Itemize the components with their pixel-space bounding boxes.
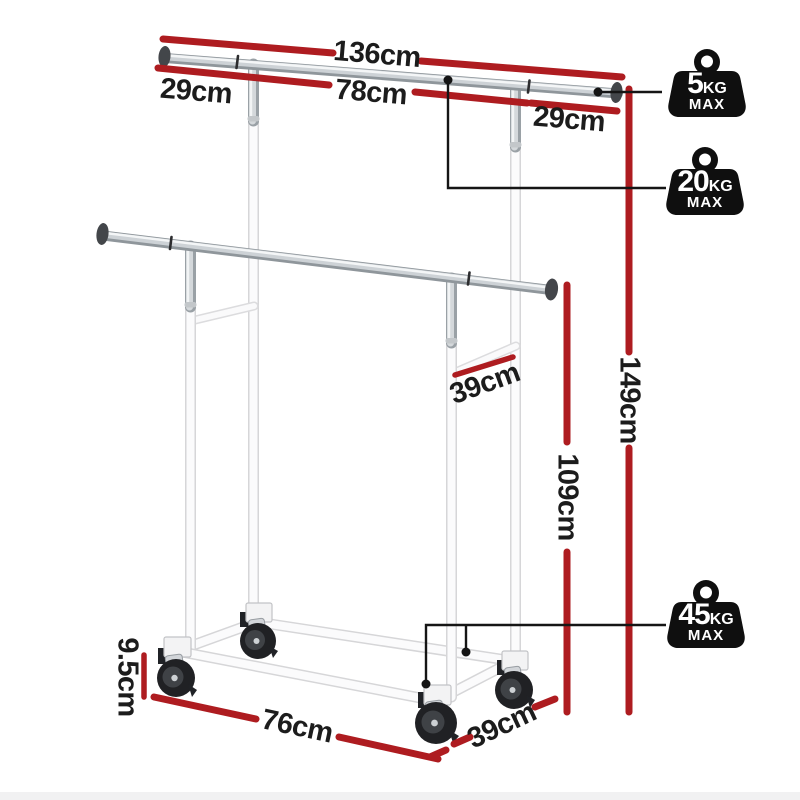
capacity-max-label: MAX — [660, 195, 750, 210]
rail-end-cap-right — [544, 278, 560, 301]
dimension-label-right-arm: 29cm — [532, 103, 606, 138]
dim-line-76-right — [339, 737, 438, 759]
capacity-max-label: MAX — [661, 628, 751, 643]
caster-front-left — [157, 637, 197, 697]
dim-line-136-right — [421, 61, 622, 77]
lower-hanging-rail — [95, 222, 559, 301]
capacity-max-label: MAX — [662, 97, 752, 112]
bottom-edge-strip — [0, 792, 800, 800]
dim-line-39-lower-dash1 — [430, 750, 446, 757]
capacity-badge-top-rail: 5KG MAX — [662, 48, 752, 122]
dimension-label-left-arm: 29cm — [159, 75, 233, 110]
back-left-upright — [248, 64, 260, 620]
capacity-badge-total: 45KG MAX — [661, 579, 751, 653]
caster-back-left — [240, 603, 278, 659]
dim-line-136-left — [163, 39, 333, 53]
dimension-label-caster-height: 9.5cm — [113, 637, 142, 716]
rail-end-cap-left — [157, 45, 171, 67]
front-left-upright — [185, 246, 197, 651]
dimension-label-center-width: 78cm — [334, 76, 408, 111]
product-dimension-diagram: 136cm 29cm 78cm 29cm 149cm 109cm 39cm 9.… — [0, 0, 800, 800]
side-brace-left — [191, 306, 254, 321]
dimension-label-top-total-width: 136cm — [332, 37, 421, 73]
dim-line-76-left — [154, 697, 256, 719]
front-right-upright — [446, 278, 458, 697]
dimension-label-lower-rail-height: 109cm — [553, 453, 582, 540]
dimension-label-total-height: 149cm — [615, 356, 644, 443]
base-front-rail — [177, 651, 436, 701]
rail-end-cap-left — [95, 222, 110, 245]
dimension-lines — [144, 39, 629, 759]
dim-line-39-lower-dash3 — [535, 699, 555, 707]
capacity-badge-lower-rail: 20KG MAX — [660, 146, 750, 220]
